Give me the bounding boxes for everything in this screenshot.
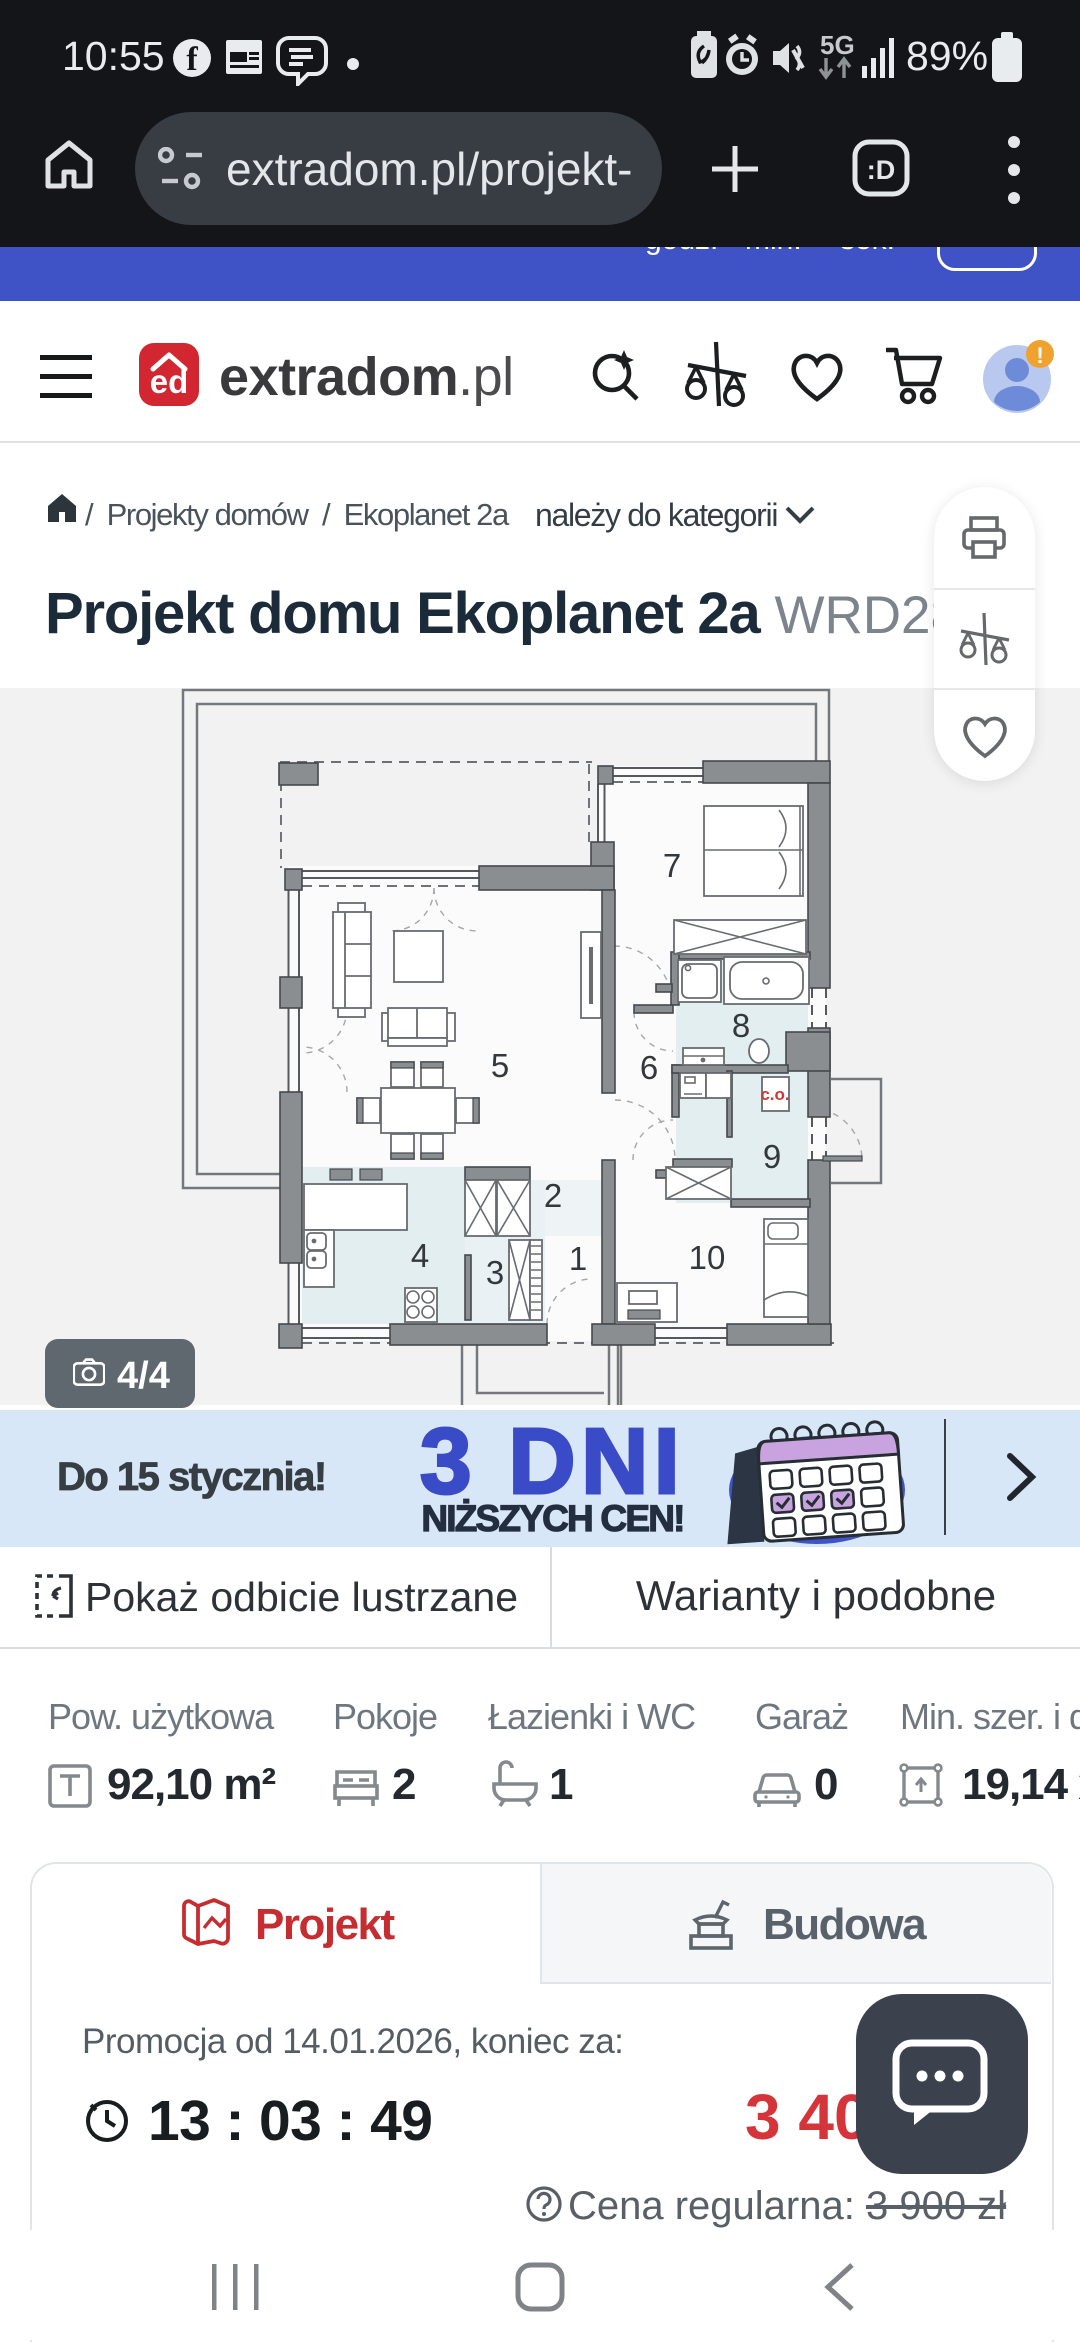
svg-text:f: f xyxy=(186,41,198,78)
svg-text:9: 9 xyxy=(763,1138,781,1175)
svg-text:!: ! xyxy=(1036,343,1043,368)
svg-text:1: 1 xyxy=(569,1240,587,1277)
svg-text:3: 3 xyxy=(486,1254,504,1291)
svg-text:c.o.: c.o. xyxy=(760,1085,789,1104)
svg-text:6: 6 xyxy=(640,1049,658,1086)
svg-text:4: 4 xyxy=(411,1237,429,1274)
svg-text:5: 5 xyxy=(491,1047,509,1084)
svg-text:7: 7 xyxy=(663,847,681,884)
svg-text:2: 2 xyxy=(544,1177,562,1214)
svg-text:ed: ed xyxy=(150,363,189,400)
svg-text::D: :D xyxy=(867,155,896,185)
svg-text:8: 8 xyxy=(732,1007,750,1044)
svg-text:10: 10 xyxy=(689,1239,726,1276)
